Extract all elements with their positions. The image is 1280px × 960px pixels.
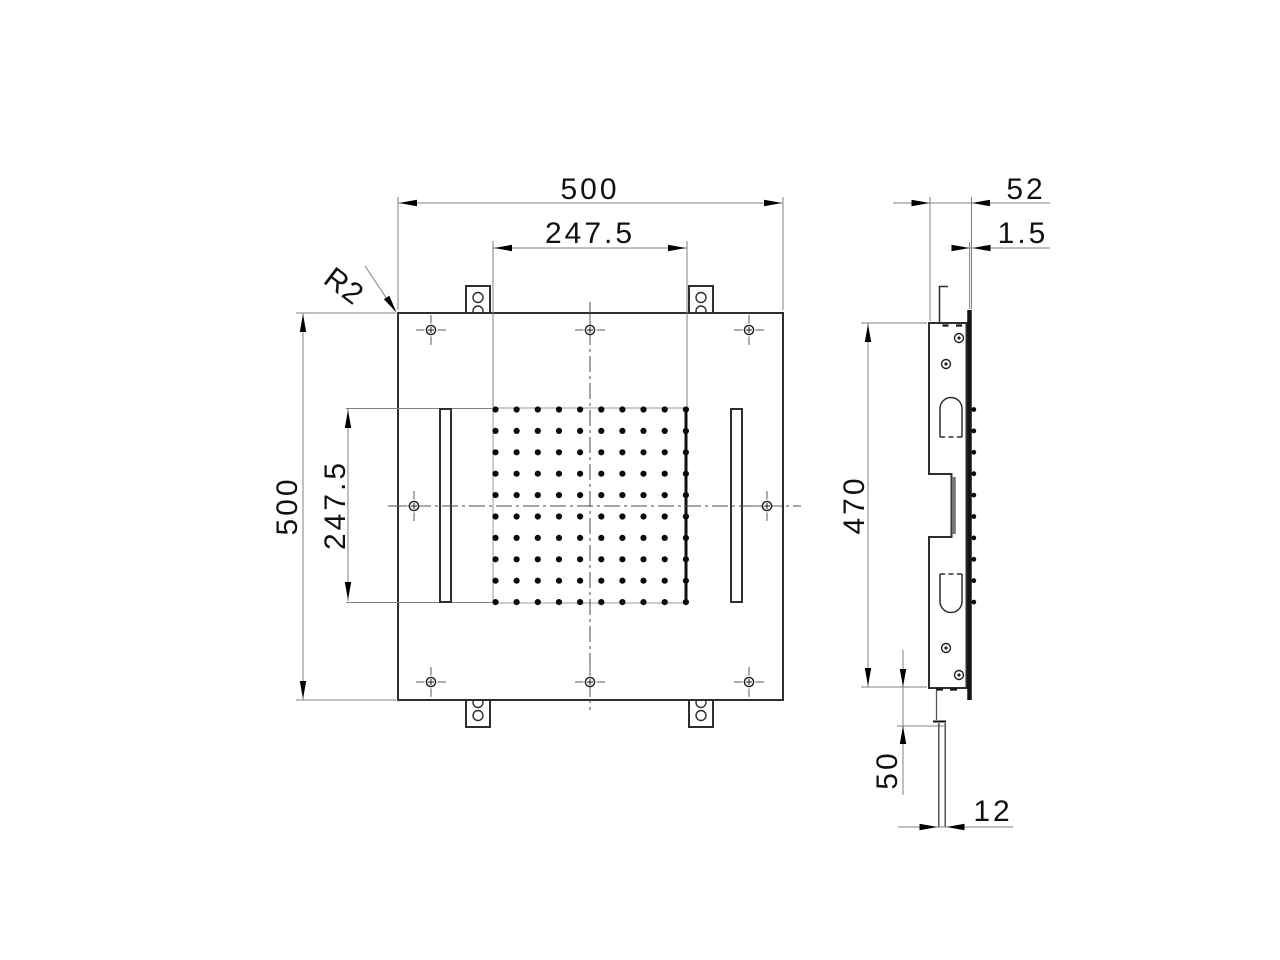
arrowhead	[912, 200, 930, 206]
arrowhead	[952, 245, 970, 251]
arrowhead	[345, 410, 351, 428]
mounting-tab-top-right	[689, 286, 713, 316]
dim-tab-drop-label: 50	[871, 750, 904, 789]
perforation-dot	[577, 599, 583, 605]
perforation-dot	[640, 535, 646, 541]
perforation-dot	[619, 513, 625, 519]
perforation-dot	[683, 599, 689, 605]
dim-thickness-label: 1.5	[998, 217, 1049, 250]
corner-radius-label: R2	[318, 261, 370, 312]
arrowhead	[900, 726, 906, 744]
arrowhead	[764, 200, 782, 206]
perforation-dot	[556, 599, 562, 605]
perforation-dot	[662, 513, 668, 519]
perforation-dot	[556, 471, 562, 477]
arrowhead	[300, 681, 306, 699]
perforation-dot	[556, 556, 562, 562]
mounting-tab-bottom-left	[466, 698, 490, 728]
perforation-dot	[514, 535, 520, 541]
arrowhead	[865, 668, 871, 686]
perforation-dot	[492, 535, 498, 541]
perforation-dot	[683, 492, 689, 498]
perforation-dot	[619, 471, 625, 477]
perforation-bump	[971, 578, 976, 583]
perforation-dot	[640, 578, 646, 584]
arrowhead	[920, 824, 938, 830]
dim-bracket-height-label: 470	[838, 475, 871, 534]
technical-drawing: 500 247.5 500 247.5 R2	[0, 0, 1280, 960]
perforation-dot	[619, 599, 625, 605]
perforation-dot	[662, 492, 668, 498]
perforation-dot	[535, 428, 541, 434]
perforation-dot	[514, 599, 520, 605]
arrowhead	[399, 200, 417, 206]
perforation-dot	[619, 535, 625, 541]
perforation-dot	[577, 471, 583, 477]
perforation-dot	[598, 513, 604, 519]
perforation-dot	[492, 492, 498, 498]
perforation-dot	[662, 449, 668, 455]
dim-pattern-height-label: 247.5	[319, 460, 352, 550]
perforation-dot	[662, 406, 668, 412]
perforation-dot	[683, 428, 689, 434]
perforation-dot	[598, 578, 604, 584]
perforation-dot	[598, 406, 604, 412]
perforation-dot	[598, 428, 604, 434]
arrowhead	[865, 324, 871, 342]
perforation-dot	[640, 556, 646, 562]
perforation-dot	[640, 513, 646, 519]
perforation-dot	[662, 599, 668, 605]
perforation-dot	[577, 449, 583, 455]
perforation-dot	[535, 578, 541, 584]
arrowhead	[300, 314, 306, 332]
perforation-dot	[598, 535, 604, 541]
perforation-bump	[971, 536, 976, 541]
perforation-dot	[662, 556, 668, 562]
perforation-dot	[662, 428, 668, 434]
bracket-body	[929, 323, 967, 688]
perforation-dot	[556, 428, 562, 434]
perforation-dot	[577, 406, 583, 412]
perforation-dot	[514, 471, 520, 477]
perforation-dot	[556, 449, 562, 455]
arrowhead	[900, 669, 906, 687]
perforation-dot	[514, 428, 520, 434]
perforation-dot	[492, 513, 498, 519]
perforation-bumps	[971, 407, 976, 604]
perforation-dot	[640, 599, 646, 605]
perforation-dot	[492, 406, 498, 412]
perforation-dot	[514, 578, 520, 584]
perforation-bump	[971, 429, 976, 434]
perforation-dot	[556, 492, 562, 498]
perforation-dot	[535, 556, 541, 562]
arrowhead	[494, 245, 512, 251]
front-view: 500 247.5 500 247.5 R2	[271, 173, 801, 727]
dim-pattern-width-label: 247.5	[545, 217, 635, 250]
dim-overall-width-label: 500	[560, 173, 619, 206]
perforation-dot	[556, 578, 562, 584]
perforation-dot	[535, 406, 541, 412]
perforation-dot	[598, 492, 604, 498]
perforation-dot	[514, 513, 520, 519]
perforation-dot	[577, 492, 583, 498]
perforation-dot	[619, 449, 625, 455]
perforation-dot	[577, 556, 583, 562]
perforation-dot	[598, 471, 604, 477]
arrowhead	[668, 245, 686, 251]
mounting-tab-bottom-right	[689, 698, 713, 728]
perforation-bump	[971, 407, 976, 412]
perforation-bump	[971, 493, 976, 498]
perforation-dot	[577, 535, 583, 541]
perforation-dot	[577, 513, 583, 519]
perforation-dot	[577, 428, 583, 434]
perforation-dot	[640, 449, 646, 455]
mounting-tab-top-left	[466, 286, 490, 316]
perforation-dot	[598, 599, 604, 605]
perforation-dot	[640, 471, 646, 477]
drawing-canvas: 500 247.5 500 247.5 R2	[0, 0, 1280, 960]
perforation-dot	[492, 471, 498, 477]
arrowhead	[384, 296, 397, 313]
arrowhead	[972, 200, 990, 206]
perforation-dot	[662, 471, 668, 477]
perforation-dot	[514, 492, 520, 498]
perforation-dot	[640, 428, 646, 434]
perforation-dot	[619, 406, 625, 412]
perforation-dot	[556, 406, 562, 412]
arrowhead	[973, 245, 991, 251]
dim-depth-label: 52	[1006, 173, 1045, 206]
perforation-dot	[556, 535, 562, 541]
perforation-bump	[971, 514, 976, 519]
perforation-bump	[971, 450, 976, 455]
perforation-dot	[683, 513, 689, 519]
bottom-tab	[933, 690, 946, 827]
dim-tab-width-label: 12	[973, 795, 1012, 828]
perforation-dot	[514, 556, 520, 562]
perforation-dot	[535, 513, 541, 519]
perforation-dot	[492, 449, 498, 455]
perforation-dot	[492, 578, 498, 584]
perforation-dot	[535, 599, 541, 605]
perforation-bump	[971, 471, 976, 476]
perforation-dot	[619, 556, 625, 562]
perforation-dot	[514, 406, 520, 412]
dim-overall-height-label: 500	[271, 476, 304, 535]
perforation-dot	[640, 492, 646, 498]
perforation-bump	[971, 600, 976, 605]
perforation-dot	[683, 578, 689, 584]
perforation-dot	[683, 471, 689, 477]
perforation-dot	[492, 556, 498, 562]
perforation-bump	[971, 557, 976, 562]
perforation-dot	[662, 578, 668, 584]
perforation-dot	[514, 449, 520, 455]
perforation-dot	[683, 556, 689, 562]
perforation-dot	[535, 471, 541, 477]
perforation-dot	[640, 406, 646, 412]
perforation-dot	[598, 556, 604, 562]
perforation-dot	[619, 578, 625, 584]
perforation-dot	[492, 428, 498, 434]
perforation-dot	[683, 449, 689, 455]
perforation-dot	[619, 428, 625, 434]
perforation-dot	[683, 406, 689, 412]
perforation-dot	[683, 535, 689, 541]
perforation-dot	[577, 578, 583, 584]
top-hook-flange	[940, 287, 949, 323]
arrowhead	[345, 582, 351, 600]
arrowhead	[947, 824, 965, 830]
perforation-dot	[535, 449, 541, 455]
side-view: 52 1.5 470 50 12	[838, 173, 1050, 828]
perforation-dot	[535, 492, 541, 498]
perforation-dot	[662, 535, 668, 541]
perforation-dot	[556, 513, 562, 519]
perforation-dot	[535, 535, 541, 541]
perforation-dot	[598, 449, 604, 455]
perforation-dot	[619, 492, 625, 498]
perforation-dot	[492, 599, 498, 605]
